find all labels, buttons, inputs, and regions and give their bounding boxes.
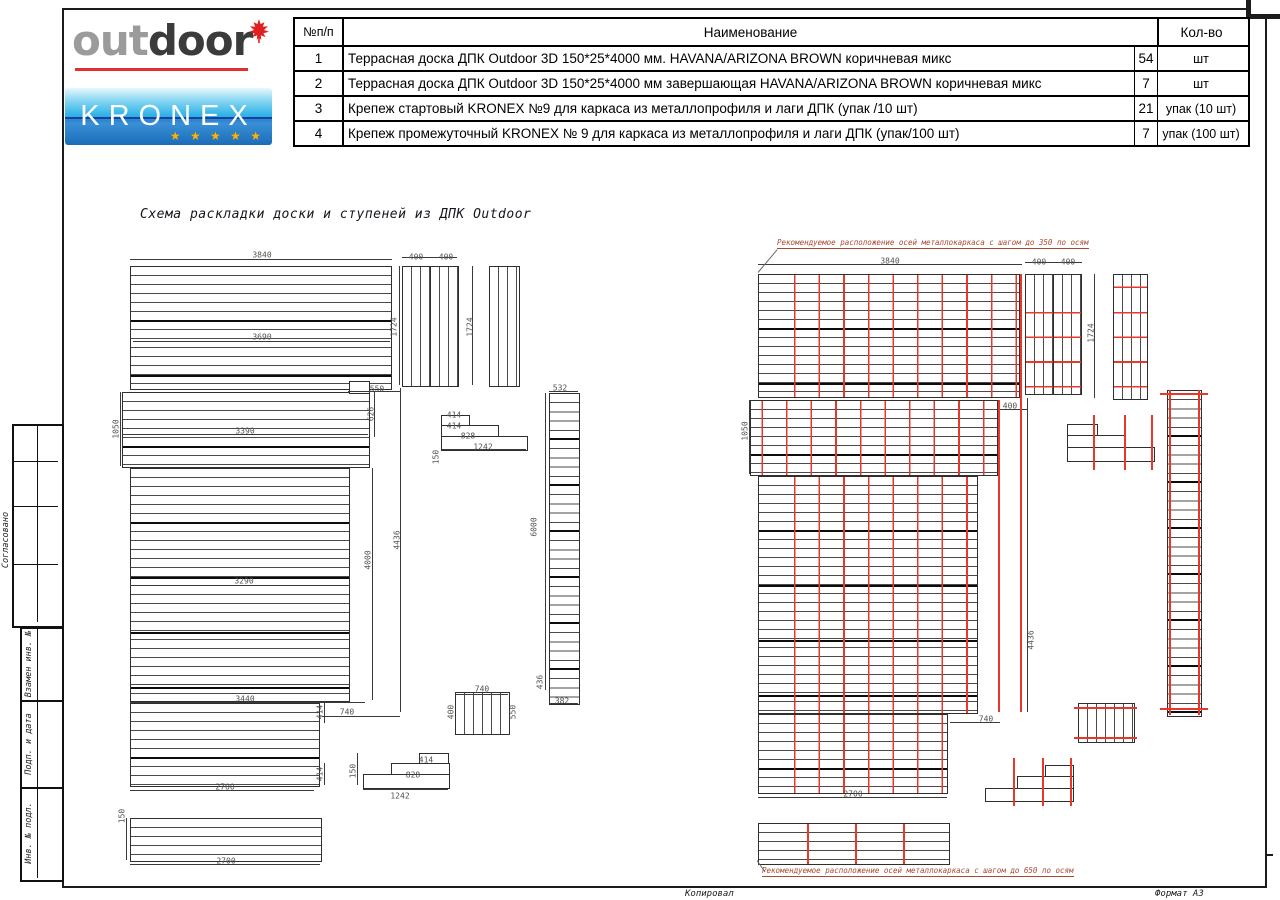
frame-axis-line	[1160, 393, 1208, 395]
dim-label: 1242	[390, 792, 409, 801]
dim-label: 1724	[1087, 323, 1096, 342]
dim-label: 2700	[843, 790, 862, 799]
dim-label: 1050	[741, 421, 750, 440]
dim-line	[455, 694, 508, 695]
dim-line	[400, 388, 401, 712]
dim-label: 3390	[235, 427, 254, 436]
approval-stamp-grid	[12, 424, 64, 628]
dim-label: 382	[555, 697, 569, 706]
dim-label: 3840	[880, 257, 899, 266]
dim-label: 414	[447, 422, 461, 431]
dim-label: 414	[316, 767, 325, 781]
stamp-box-line	[37, 789, 38, 878]
dim-label: 6000	[530, 517, 539, 536]
dim-label: 400	[1061, 258, 1075, 267]
dim-label: 2700	[216, 857, 235, 866]
dim-label: 414	[419, 756, 433, 765]
margin-label-inv: Инв. № подл.	[24, 802, 34, 863]
dim-label: 414	[447, 411, 461, 420]
dim-label: 4000	[364, 550, 373, 569]
dim-label: 400	[409, 253, 423, 262]
stamp-grid-line	[14, 564, 58, 565]
dim-line	[363, 789, 448, 790]
dim-label: 3840	[252, 251, 271, 260]
frame-axis-line	[1074, 737, 1137, 739]
frame-axis-line	[1013, 758, 1015, 806]
drawing-sheet: outdoor KRONEX ★ ★ ★ ★ ★ №п/п Наименован…	[0, 0, 1280, 900]
dim-line	[372, 468, 373, 700]
dim-line	[126, 818, 127, 860]
frame-axis-line	[998, 400, 1000, 712]
dim-line	[322, 716, 400, 717]
dim-label: 1724	[390, 317, 399, 336]
dim-label: 150	[118, 809, 127, 823]
dim-label: 2700	[215, 783, 234, 792]
margin-label-vzamen: Взамен инв. №	[24, 631, 34, 698]
dimension-labels-layer: 3840400400369017241724550626105033904144…	[0, 0, 1280, 900]
frame-axis-line	[1070, 758, 1072, 806]
dim-label: 828	[406, 771, 420, 780]
dim-label: 400	[1032, 258, 1046, 267]
dim-label: 626	[367, 407, 376, 421]
dim-label: 414	[316, 705, 325, 719]
dim-label: 400	[447, 705, 456, 719]
frame-axis-line	[1160, 708, 1208, 710]
dim-label: 550	[509, 705, 518, 719]
dim-label: 3690	[252, 333, 271, 342]
dim-label: 1242	[473, 443, 492, 452]
dim-label: 4436	[1027, 630, 1036, 649]
stamp-box-line	[37, 702, 38, 787]
frame-axis-line	[1042, 758, 1044, 806]
stamp-box-line	[37, 629, 38, 700]
frame-axis-line	[1151, 415, 1153, 470]
footer-format: Формат А3	[1155, 889, 1204, 899]
dim-label: 400	[1003, 402, 1017, 411]
frame-axis-line	[1020, 274, 1022, 712]
dim-label: 400	[439, 253, 453, 262]
margin-label-podp: Подп. и дата	[24, 713, 34, 774]
dim-label: 740	[475, 685, 489, 694]
frame-axis-line	[1124, 415, 1126, 470]
dim-label: 3440	[235, 695, 254, 704]
stamp-grid-line	[14, 506, 58, 507]
dim-line	[545, 393, 546, 690]
frame-axis-line	[1074, 707, 1137, 709]
dim-label: 550	[370, 385, 384, 394]
dim-label: 150	[349, 764, 358, 778]
stamp-grid-line	[37, 426, 38, 622]
dim-label: 1724	[466, 317, 475, 336]
dim-label: 436	[536, 675, 545, 689]
dim-label: 4436	[393, 530, 402, 549]
dim-label: 740	[340, 708, 354, 717]
margin-label-soglasovano: Согласовано	[1, 512, 11, 568]
dim-label: 532	[553, 384, 567, 393]
stamp-grid-line	[14, 461, 58, 462]
frame-axis-line	[1093, 415, 1095, 470]
dim-label: 828	[461, 432, 475, 441]
frame-axis-line	[1169, 390, 1171, 715]
dim-line	[399, 266, 400, 385]
dim-label: 3290	[234, 577, 253, 586]
dim-line	[1027, 398, 1028, 712]
footer-copied: Копировал	[685, 889, 734, 899]
frame-axis-line	[1198, 390, 1200, 715]
dim-label: 150	[432, 450, 441, 464]
dim-label: 1050	[112, 419, 121, 438]
dim-label: 740	[979, 715, 993, 724]
